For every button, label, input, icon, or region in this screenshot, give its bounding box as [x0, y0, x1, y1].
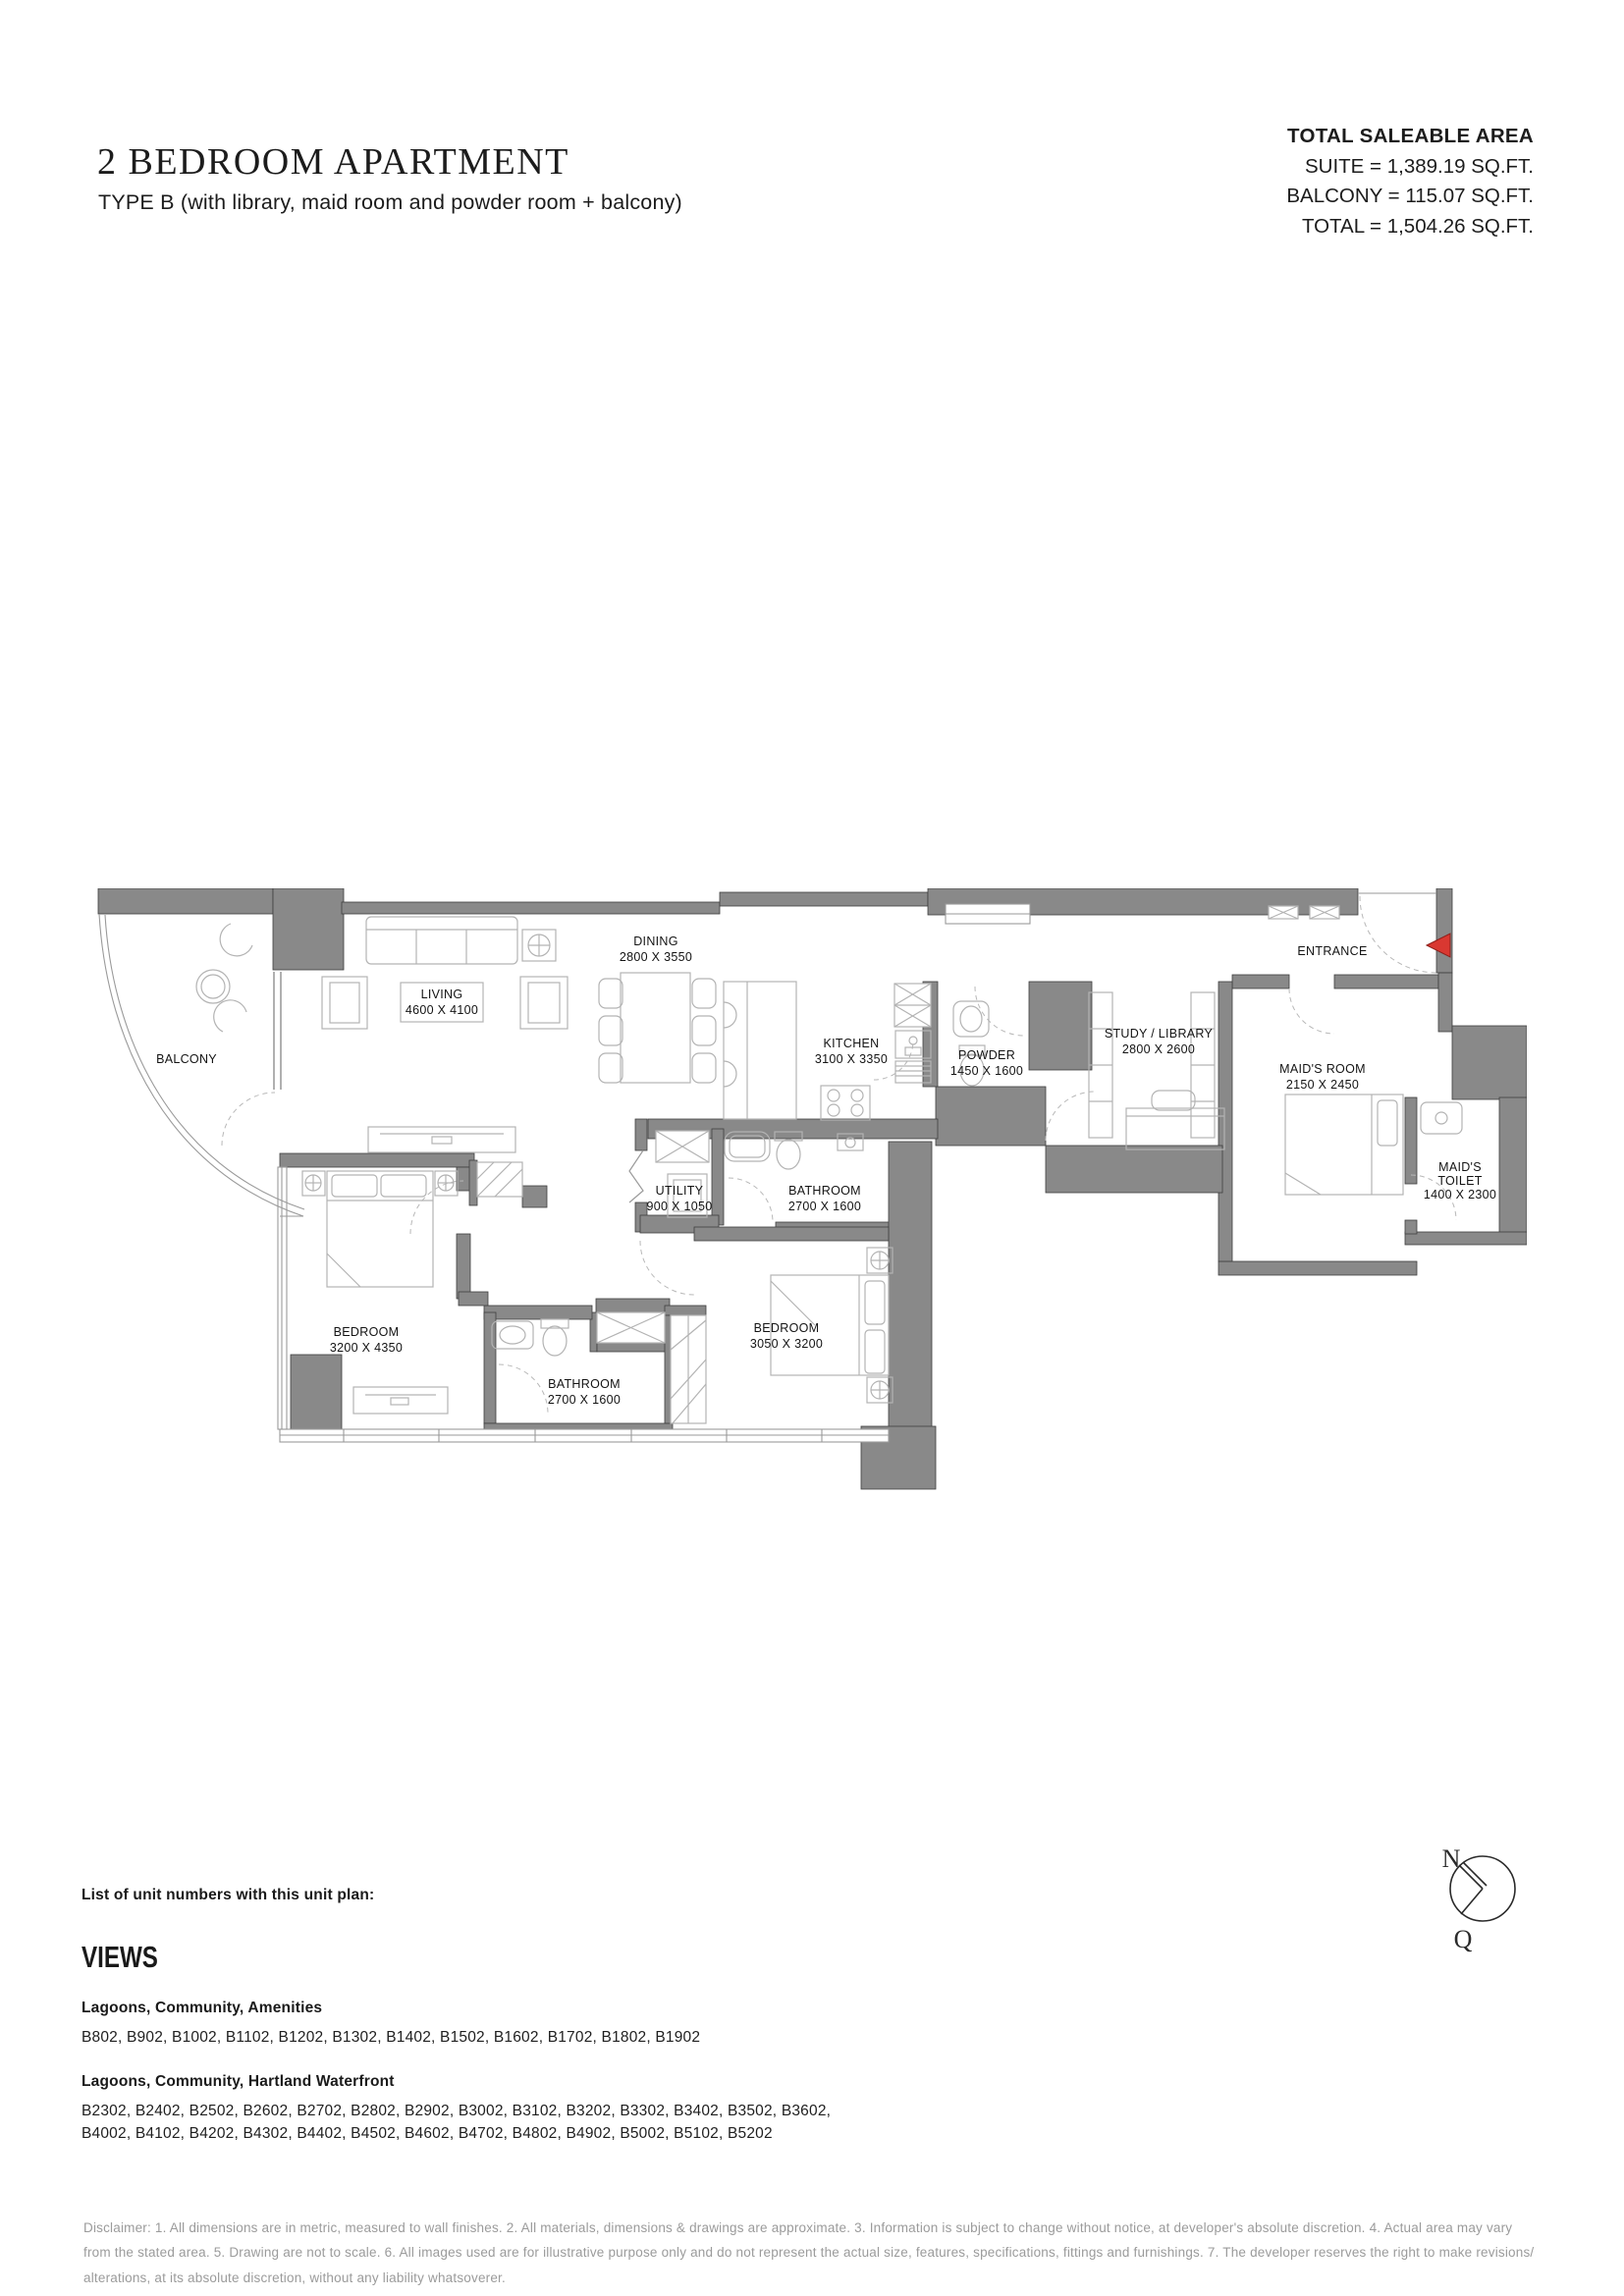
toilet	[777, 1140, 800, 1169]
floor-plan-drawing: BALCONY LIVING 4600 X 4100 DINING 2800 X…	[93, 888, 1527, 1497]
saleable-area-summary: TOTAL SALEABLE AREA SUITE = 1,389.19 SQ.…	[1286, 122, 1534, 241]
dining-table	[621, 973, 690, 1083]
dining-chair	[599, 1016, 623, 1045]
pillow	[381, 1175, 426, 1197]
bathroom2-label: BATHROOM	[548, 1377, 621, 1391]
view-group-numbers: B802, B902, B1002, B1102, B1202, B1302, …	[81, 2026, 700, 2049]
balcony-chair	[214, 1000, 246, 1032]
kitchen-island	[724, 982, 796, 1119]
page-title: 2 BEDROOM APARTMENT	[97, 140, 569, 184]
view-group-numbers-line: B4002, B4102, B4202, B4302, B4402, B4502…	[81, 2122, 831, 2145]
bathroom1-dims: 2700 X 1600	[788, 1200, 861, 1213]
kitchen-dims: 3100 X 3350	[815, 1052, 888, 1066]
views-heading: VIEWS	[81, 1940, 158, 1975]
dining-chair	[599, 1053, 623, 1083]
view-group-numbers: B2302, B2402, B2502, B2602, B2702, B2802…	[81, 2100, 831, 2145]
entrance-label: ENTRANCE	[1297, 944, 1367, 958]
kitchen-basin	[724, 1061, 736, 1087]
dining-chair	[599, 979, 623, 1008]
page-subtitle: TYPE B (with library, maid room and powd…	[98, 190, 682, 215]
view-group-numbers-line: B2302, B2402, B2502, B2602, B2702, B2802…	[81, 2100, 831, 2122]
pillow	[332, 1175, 377, 1197]
toilet	[543, 1326, 567, 1356]
view-group-label: Lagoons, Community, Amenities	[81, 2000, 322, 2017]
pillow	[865, 1330, 885, 1373]
dining-chair	[692, 1016, 716, 1045]
study-dims: 2800 X 2600	[1122, 1042, 1195, 1056]
compass-needle-qibla	[1461, 1889, 1483, 1914]
kitchen-basin	[724, 1002, 736, 1028]
maids-toilet-dims: 1400 X 2300	[1424, 1188, 1496, 1201]
utility-folding-door	[629, 1150, 643, 1202]
living-label: LIVING	[421, 988, 463, 1001]
utility-dims: 900 X 1050	[647, 1200, 713, 1213]
study-label: STUDY / LIBRARY	[1105, 1027, 1214, 1041]
compass-qibla-label: Q	[1454, 1925, 1473, 1953]
maids-room-label: MAID'S ROOM	[1279, 1062, 1366, 1076]
bathroom1-label: BATHROOM	[788, 1184, 861, 1198]
kitchen-label: KITCHEN	[824, 1037, 880, 1050]
dining-chair	[692, 1053, 716, 1083]
dining-chair	[692, 979, 716, 1008]
study-door-arc	[1046, 1092, 1095, 1141]
sink	[1421, 1102, 1462, 1134]
compass-icon: N Q	[1414, 1828, 1542, 1955]
pillow	[1378, 1100, 1397, 1146]
disclaimer-text: Disclaimer: 1. All dimensions are in met…	[83, 2216, 1542, 2291]
armchair	[322, 977, 367, 1029]
compass-north-label: N	[1442, 1844, 1461, 1873]
toilet-tank	[541, 1319, 568, 1328]
entrance-door-arc	[1360, 896, 1436, 973]
stove	[821, 1086, 870, 1120]
floor-plan-brochure-page: { "header": { "title": "2 BEDROOM APARTM…	[0, 0, 1624, 2296]
maids-toilet-label-1: MAID'S	[1438, 1160, 1482, 1174]
bathroom2-dims: 2700 X 1600	[548, 1393, 621, 1407]
compass-needle-north	[1459, 1865, 1483, 1889]
bathroom1-door-arc	[729, 1178, 773, 1222]
dining-label: DINING	[633, 934, 678, 948]
saleable-area-balcony: BALCONY = 115.07 SQ.FT.	[1286, 182, 1534, 212]
desk	[1126, 1108, 1224, 1149]
saleable-area-heading: TOTAL SALEABLE AREA	[1286, 122, 1534, 152]
desk-chair	[1152, 1091, 1195, 1110]
tv-console	[368, 1127, 515, 1152]
bedroom1-door-arc	[410, 1181, 463, 1234]
sink	[492, 1321, 533, 1349]
bedroom1-label: BEDROOM	[334, 1325, 400, 1339]
unit-list-intro: List of unit numbers with this unit plan…	[81, 1887, 374, 1904]
bed	[1285, 1095, 1403, 1195]
utility-label: UTILITY	[656, 1184, 704, 1198]
maids-toilet-label-2: TOILET	[1437, 1174, 1482, 1188]
bathroom2-door-arc	[499, 1364, 548, 1414]
sofa	[366, 917, 517, 964]
powder-dims: 1450 X 1600	[950, 1064, 1023, 1078]
saleable-area-suite: SUITE = 1,389.19 SQ.FT.	[1286, 152, 1534, 183]
dresser	[353, 1387, 448, 1414]
bedroom2-label: BEDROOM	[754, 1321, 820, 1335]
maids-room-dims: 2150 X 2450	[1286, 1078, 1359, 1092]
balcony-label: BALCONY	[156, 1052, 217, 1066]
floor-plan: BALCONY LIVING 4600 X 4100 DINING 2800 X…	[93, 888, 1527, 1497]
powder-door-arc	[975, 987, 1024, 1036]
bedroom2-dims: 3050 X 3200	[750, 1337, 823, 1351]
armchair	[520, 977, 568, 1029]
powder-label: POWDER	[958, 1048, 1015, 1062]
maids-room-door-arc	[1289, 988, 1334, 1034]
balcony-chair	[220, 924, 252, 956]
living-dims: 4600 X 4100	[406, 1003, 478, 1017]
view-group-label: Lagoons, Community, Hartland Waterfront	[81, 2073, 395, 2091]
dining-dims: 2800 X 3550	[620, 950, 692, 964]
saleable-area-total: TOTAL = 1,504.26 SQ.FT.	[1286, 212, 1534, 242]
bedroom1-dims: 3200 X 4350	[330, 1341, 403, 1355]
balcony-door-arc	[222, 1093, 275, 1146]
pillow	[865, 1281, 885, 1324]
bedroom2-door-arc	[640, 1241, 694, 1295]
